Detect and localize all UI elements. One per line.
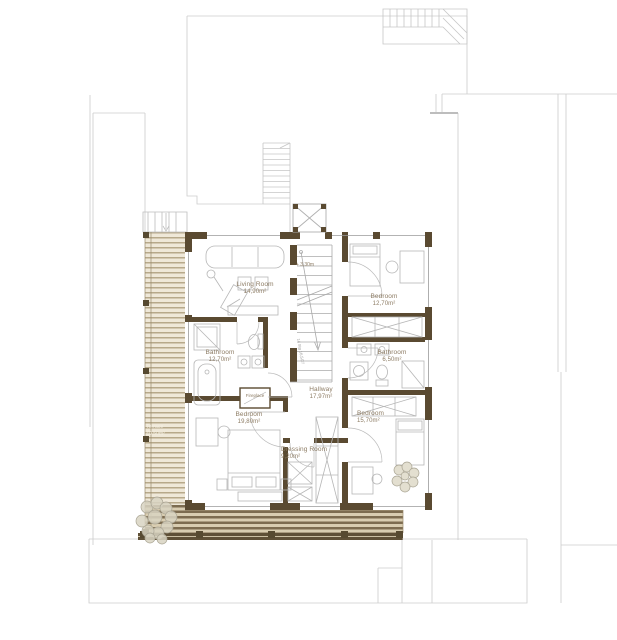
room-name: Bedroom bbox=[211, 411, 287, 419]
room-name: Bedroom bbox=[357, 410, 421, 418]
room-label-hallway: Hallway 17,97m² bbox=[284, 386, 358, 402]
skylight-shaft-icon bbox=[293, 204, 326, 232]
room-area: 15,70m² bbox=[357, 418, 421, 426]
exterior-stair-top-icon bbox=[263, 143, 290, 232]
level-marker: + 3,30m bbox=[287, 262, 323, 268]
room-label-bedroom-3: Bedroom 15,70m² bbox=[357, 410, 421, 426]
room-label-living-room: Living Room 14,90m² bbox=[213, 281, 297, 297]
room-area: 6,50m² bbox=[356, 357, 428, 365]
room-name: Dressing Room bbox=[281, 446, 355, 454]
fireplace-label: Fireplace bbox=[240, 393, 270, 398]
room-name: Living Room bbox=[213, 281, 297, 289]
room-area: 40,50m² bbox=[146, 431, 186, 438]
room-label-bathroom-1: Bathroom 12,70m² bbox=[183, 349, 257, 365]
floor-plan-canvas: Living Room 14,90m² Bedroom 12,70m² Bath… bbox=[0, 0, 617, 640]
room-label-bathroom-2: Bathroom 6,50m² bbox=[356, 349, 428, 365]
room-label-bedroom-2: Bedroom 19,80m² bbox=[211, 411, 287, 427]
floor-plan-drawing bbox=[0, 0, 617, 640]
room-area: 14,90m² bbox=[213, 289, 297, 297]
room-area: 12,70m² bbox=[183, 357, 257, 365]
fireplace-icon bbox=[240, 388, 270, 408]
room-area: 19,80m² bbox=[211, 419, 287, 427]
room-label-bedroom-1: Bedroom 12,70m² bbox=[346, 293, 422, 309]
room-name: Bathroom bbox=[356, 349, 428, 357]
room-name: Bathroom bbox=[183, 349, 257, 357]
neighbor-stair-icon bbox=[383, 9, 467, 44]
room-area: 9,20m² bbox=[281, 454, 355, 462]
room-area: 17,97m² bbox=[284, 394, 358, 402]
room-area: 12,70m² bbox=[346, 301, 422, 309]
terrace-entry-steps-icon bbox=[143, 212, 187, 232]
room-label-terrace: Terrace 40,50m² bbox=[146, 424, 186, 437]
room-name: Bedroom bbox=[346, 293, 422, 301]
room-label-dressing-room: Dressing Room 9,20m² bbox=[281, 446, 355, 462]
room-name: Hallway bbox=[284, 386, 358, 394]
